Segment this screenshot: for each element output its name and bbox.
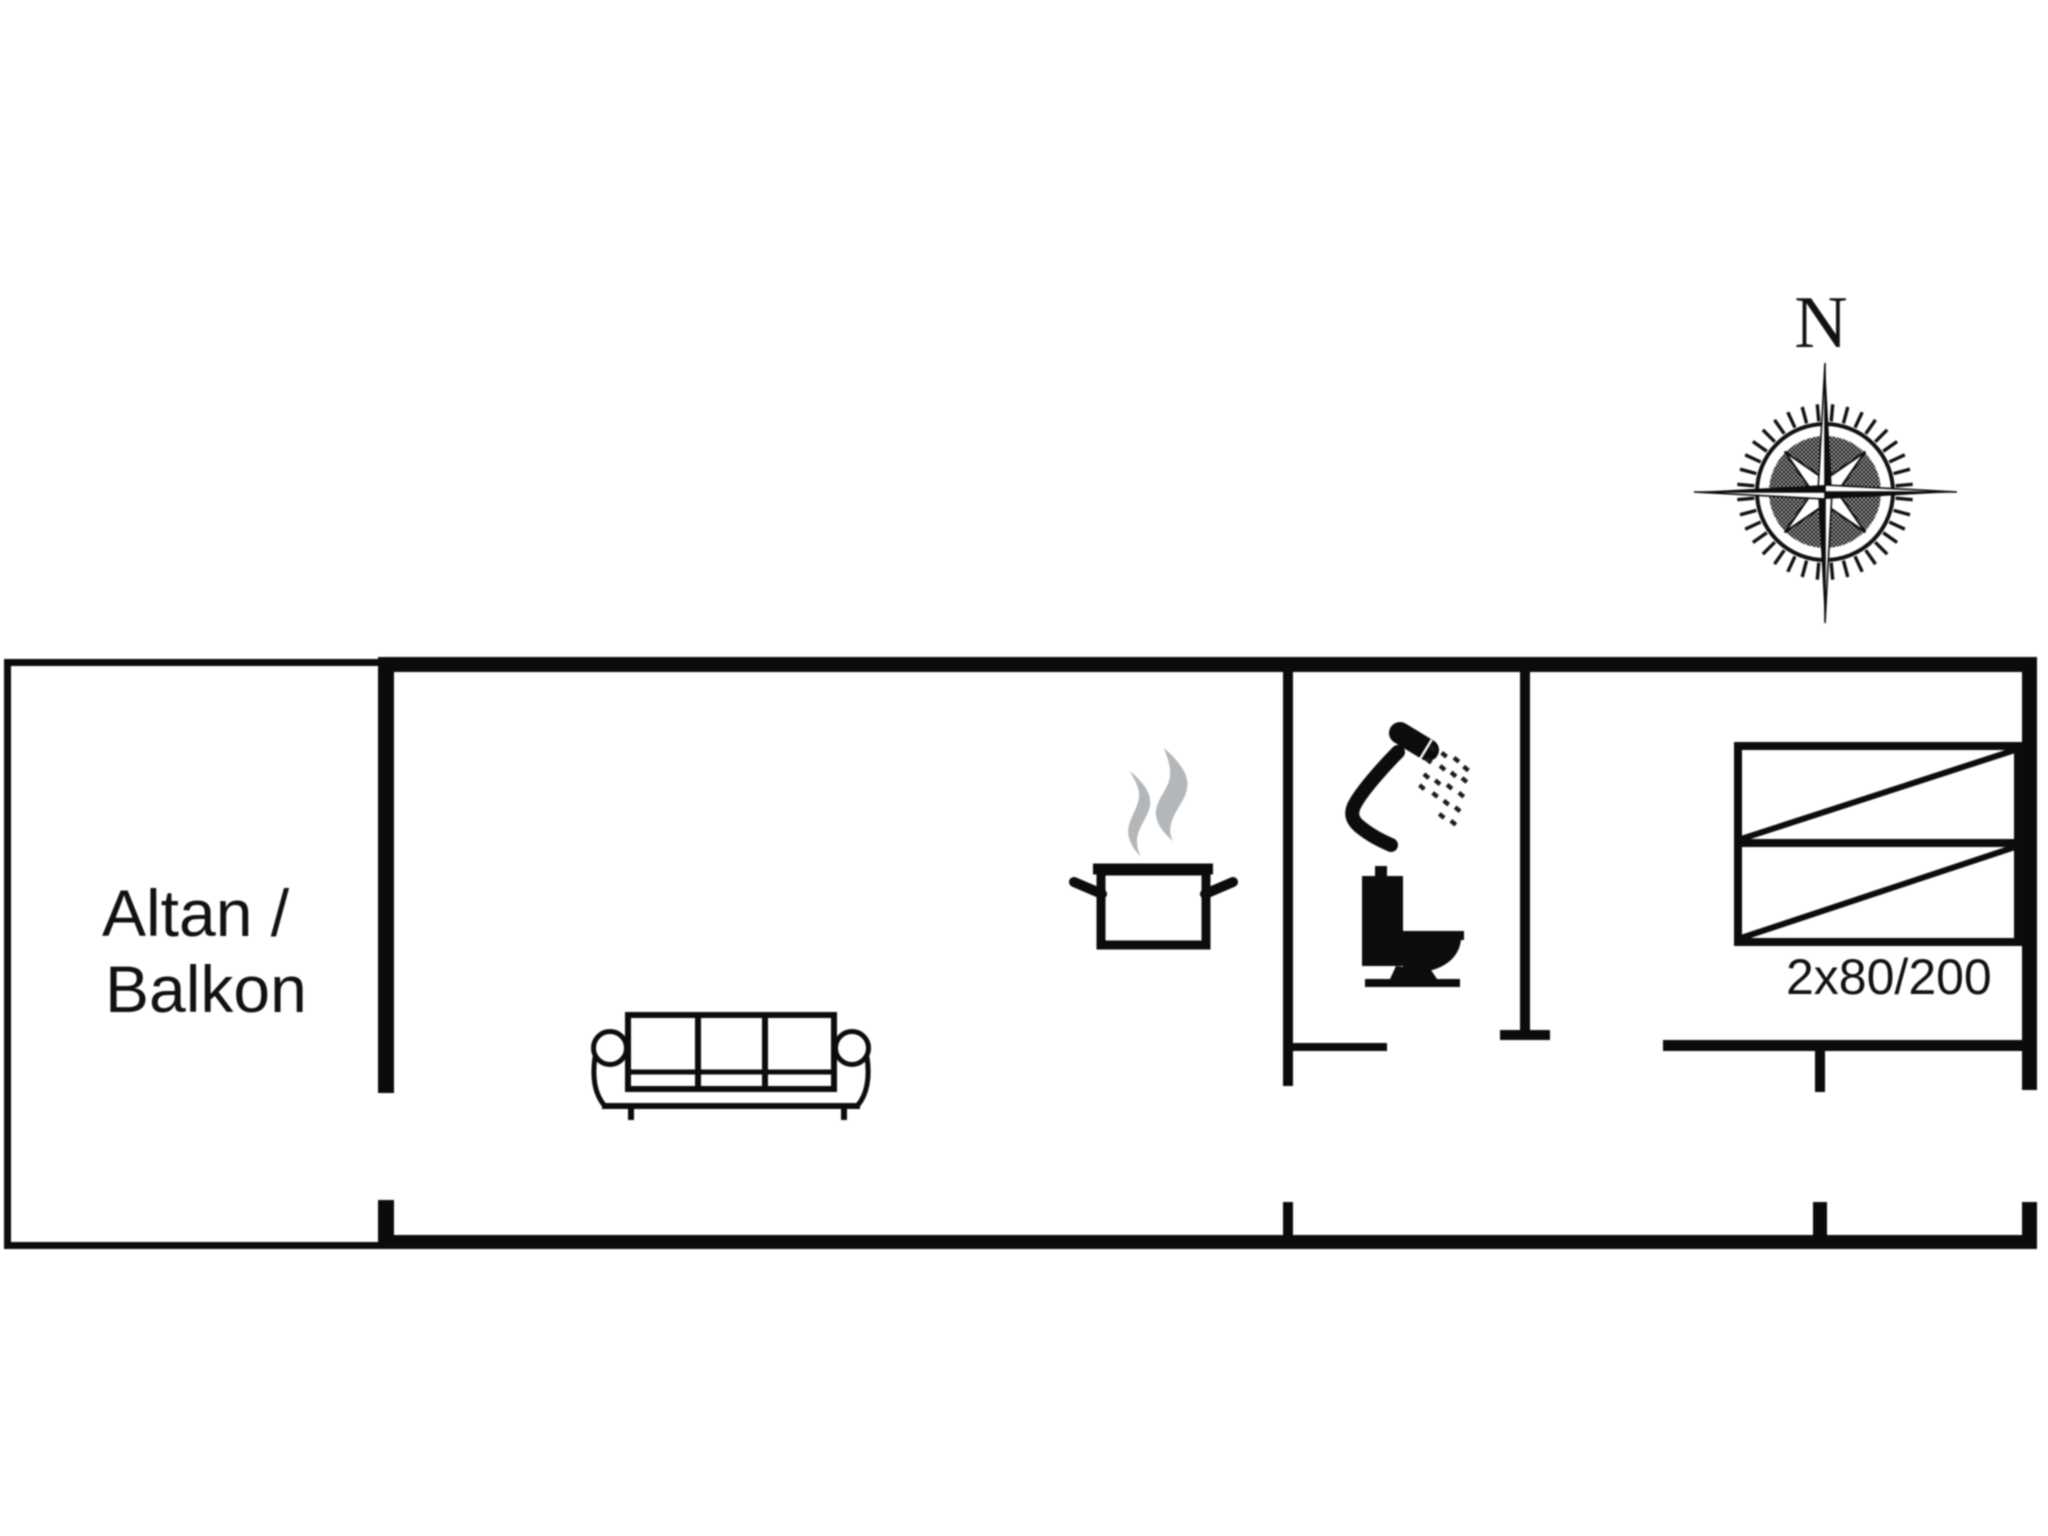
svg-text:N: N [1794, 282, 1847, 364]
svg-text:Altan /: Altan / [102, 876, 290, 950]
svg-text:Balkon: Balkon [105, 952, 307, 1026]
svg-text:2x80/200: 2x80/200 [1786, 949, 1992, 1005]
